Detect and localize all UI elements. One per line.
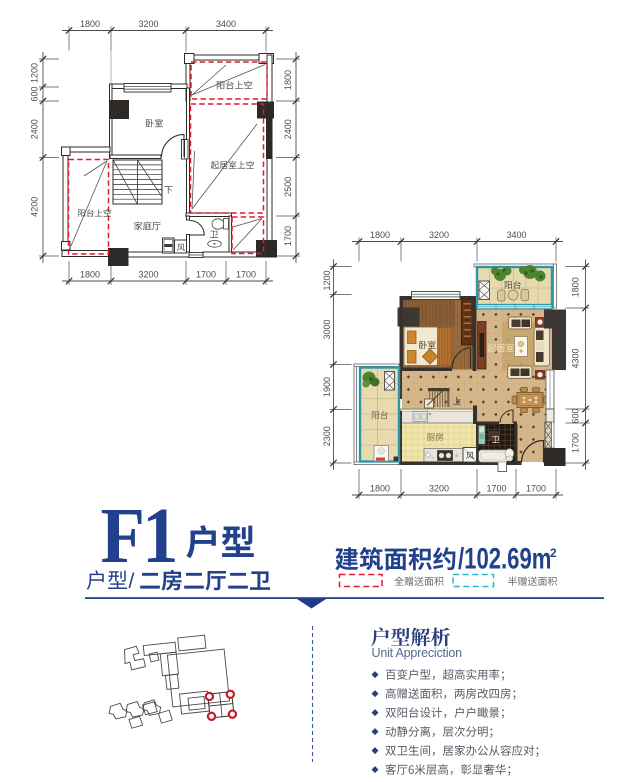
svg-text:2500: 2500 [283, 177, 293, 197]
svg-text:1800: 1800 [370, 484, 390, 494]
svg-text:1200: 1200 [322, 270, 332, 290]
svg-text:3400: 3400 [506, 230, 526, 240]
svg-text:1700: 1700 [571, 433, 581, 453]
svg-text:1800: 1800 [571, 277, 581, 297]
svg-text:F1: F1 [101, 492, 176, 579]
svg-text:3000: 3000 [322, 319, 332, 339]
svg-text:/102.69m: /102.69m [458, 541, 551, 575]
svg-text:1800: 1800 [283, 70, 293, 90]
svg-text:1200: 1200 [30, 63, 40, 83]
svg-text:2: 2 [550, 546, 557, 560]
svg-text:1700: 1700 [486, 484, 506, 494]
svg-text:600: 600 [30, 86, 40, 101]
svg-text:4300: 4300 [571, 348, 581, 368]
svg-text:3200: 3200 [138, 270, 158, 280]
svg-text:1800: 1800 [370, 230, 390, 240]
svg-text:1700: 1700 [196, 270, 216, 280]
svg-text:3200: 3200 [138, 19, 158, 29]
svg-text:1700: 1700 [526, 484, 546, 494]
svg-text:Unit Appreciction: Unit Appreciction [372, 646, 463, 660]
svg-text:2300: 2300 [322, 426, 332, 446]
svg-text:1800: 1800 [80, 19, 100, 29]
svg-text:3200: 3200 [429, 230, 449, 240]
svg-text:1800: 1800 [80, 270, 100, 280]
svg-text:3400: 3400 [216, 19, 236, 29]
svg-text:4200: 4200 [30, 197, 40, 217]
svg-text:/: / [129, 570, 135, 593]
svg-text:1900: 1900 [322, 377, 332, 397]
svg-text:1700: 1700 [283, 226, 293, 246]
svg-text:2400: 2400 [30, 119, 40, 139]
svg-text:1700: 1700 [236, 270, 256, 280]
svg-text:3200: 3200 [429, 484, 449, 494]
svg-text:2400: 2400 [283, 119, 293, 139]
svg-text:600: 600 [571, 408, 581, 423]
